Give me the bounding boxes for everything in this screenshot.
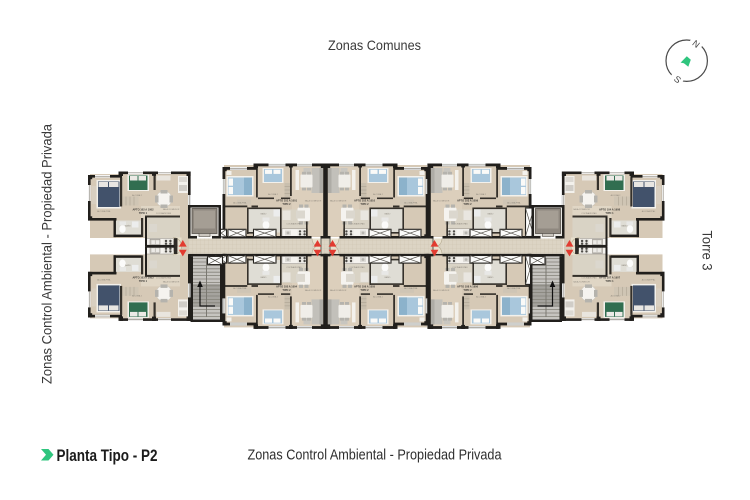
svg-text:ALCOBA PPAL: ALCOBA PPAL xyxy=(507,287,521,290)
svg-text:TIPO 1: TIPO 1 xyxy=(139,211,148,215)
svg-text:TIPO 2: TIPO 2 xyxy=(360,288,369,292)
svg-text:TIPO 1: TIPO 1 xyxy=(605,279,614,283)
svg-text:BAÑO: BAÑO xyxy=(125,264,131,267)
svg-text:ALCOBA 2: ALCOBA 2 xyxy=(373,295,384,298)
svg-text:BAÑO: BAÑO xyxy=(488,213,494,216)
svg-text:TIPO 2: TIPO 2 xyxy=(463,202,472,206)
svg-text:ALCOBA 2: ALCOBA 2 xyxy=(268,295,279,298)
svg-text:BAÑO: BAÑO xyxy=(125,225,131,228)
svg-text:COCINA/ROPAS: COCINA/ROPAS xyxy=(156,212,172,215)
svg-text:SALA /COMEDOR: SALA /COMEDOR xyxy=(163,280,180,283)
svg-text:BAÑO: BAÑO xyxy=(622,225,628,228)
svg-text:BAÑO: BAÑO xyxy=(261,276,267,279)
svg-text:COCINA/ROPAS: COCINA/ROPAS xyxy=(452,266,468,269)
svg-text:BAÑO: BAÑO xyxy=(385,213,391,216)
svg-text:SALA /COMEDOR: SALA /COMEDOR xyxy=(330,200,347,203)
svg-text:SALA /COMEDOR: SALA /COMEDOR xyxy=(433,200,450,203)
svg-text:ALCOBA PPAL: ALCOBA PPAL xyxy=(642,278,656,281)
svg-text:SALA /COMEDOR: SALA /COMEDOR xyxy=(573,280,590,283)
svg-text:Zonas Control Ambiental - Prop: Zonas Control Ambiental - Propiedad Priv… xyxy=(248,448,503,464)
svg-text:COCINA/ROPAS: COCINA/ROPAS xyxy=(452,223,468,226)
svg-text:SALA /COMEDOR: SALA /COMEDOR xyxy=(573,208,590,211)
svg-text:SALA /COMEDOR: SALA /COMEDOR xyxy=(163,208,180,211)
svg-text:ALCOBA PPAL: ALCOBA PPAL xyxy=(233,287,247,290)
svg-text:COCINA/ROPAS: COCINA/ROPAS xyxy=(286,223,302,226)
svg-text:COCINA/ROPAS: COCINA/ROPAS xyxy=(286,266,302,269)
svg-text:Zonas Control Ambiental - Prop: Zonas Control Ambiental - Propiedad Priv… xyxy=(39,124,55,384)
svg-text:ALCOBA PPAL: ALCOBA PPAL xyxy=(404,287,418,290)
svg-text:TIPO 2: TIPO 2 xyxy=(282,288,291,292)
svg-text:ALCOBA 2: ALCOBA 2 xyxy=(611,194,622,197)
svg-text:COCINA/ROPAS: COCINA/ROPAS xyxy=(156,276,172,279)
svg-text:BAÑO: BAÑO xyxy=(488,276,494,279)
svg-text:SALA /COMEDOR: SALA /COMEDOR xyxy=(305,289,322,292)
svg-text:TIPO 2: TIPO 2 xyxy=(463,288,472,292)
svg-text:SALA /COMEDOR: SALA /COMEDOR xyxy=(433,289,450,292)
svg-text:ALCOBA 2: ALCOBA 2 xyxy=(611,294,622,297)
svg-text:ALCOBA PPAL: ALCOBA PPAL xyxy=(507,202,521,205)
svg-text:ALCOBA 2: ALCOBA 2 xyxy=(132,294,143,297)
svg-text:ALCOBA 2: ALCOBA 2 xyxy=(476,295,487,298)
svg-text:ALCOBA 2: ALCOBA 2 xyxy=(476,193,487,196)
svg-text:ALCOBA PPAL: ALCOBA PPAL xyxy=(97,210,111,213)
svg-text:ALCOBA PPAL: ALCOBA PPAL xyxy=(97,278,111,281)
svg-text:SALA /COMEDOR: SALA /COMEDOR xyxy=(305,200,322,203)
svg-text:ALCOBA PPAL: ALCOBA PPAL xyxy=(404,202,418,205)
svg-text:COCINA/ROPAS: COCINA/ROPAS xyxy=(581,276,597,279)
svg-text:TIPO 1: TIPO 1 xyxy=(139,279,148,283)
svg-text:ALCOBA 2: ALCOBA 2 xyxy=(373,193,384,196)
svg-text:SALA /COMEDOR: SALA /COMEDOR xyxy=(330,289,347,292)
svg-text:ALCOBA 2: ALCOBA 2 xyxy=(268,193,279,196)
svg-text:ALCOBA PPAL: ALCOBA PPAL xyxy=(233,202,247,205)
svg-text:Zonas Comunes: Zonas Comunes xyxy=(328,37,421,53)
svg-text:ALCOBA PPAL: ALCOBA PPAL xyxy=(642,210,656,213)
svg-text:BAÑO: BAÑO xyxy=(622,264,628,267)
svg-text:COCINA/ROPAS: COCINA/ROPAS xyxy=(349,266,365,269)
svg-text:ALCOBA 2: ALCOBA 2 xyxy=(132,194,143,197)
svg-text:TIPO 1: TIPO 1 xyxy=(605,211,614,215)
svg-text:TIPO 2: TIPO 2 xyxy=(282,202,291,206)
svg-text:BAÑO: BAÑO xyxy=(261,213,267,216)
svg-text:COCINA/ROPAS: COCINA/ROPAS xyxy=(581,212,597,215)
svg-text:Torre 3: Torre 3 xyxy=(700,231,716,271)
svg-text:COCINA/ROPAS: COCINA/ROPAS xyxy=(349,223,365,226)
svg-text:Planta Tipo - P2: Planta Tipo - P2 xyxy=(57,446,158,465)
svg-text:BAÑO: BAÑO xyxy=(385,276,391,279)
svg-text:TIPO 2: TIPO 2 xyxy=(360,202,369,206)
